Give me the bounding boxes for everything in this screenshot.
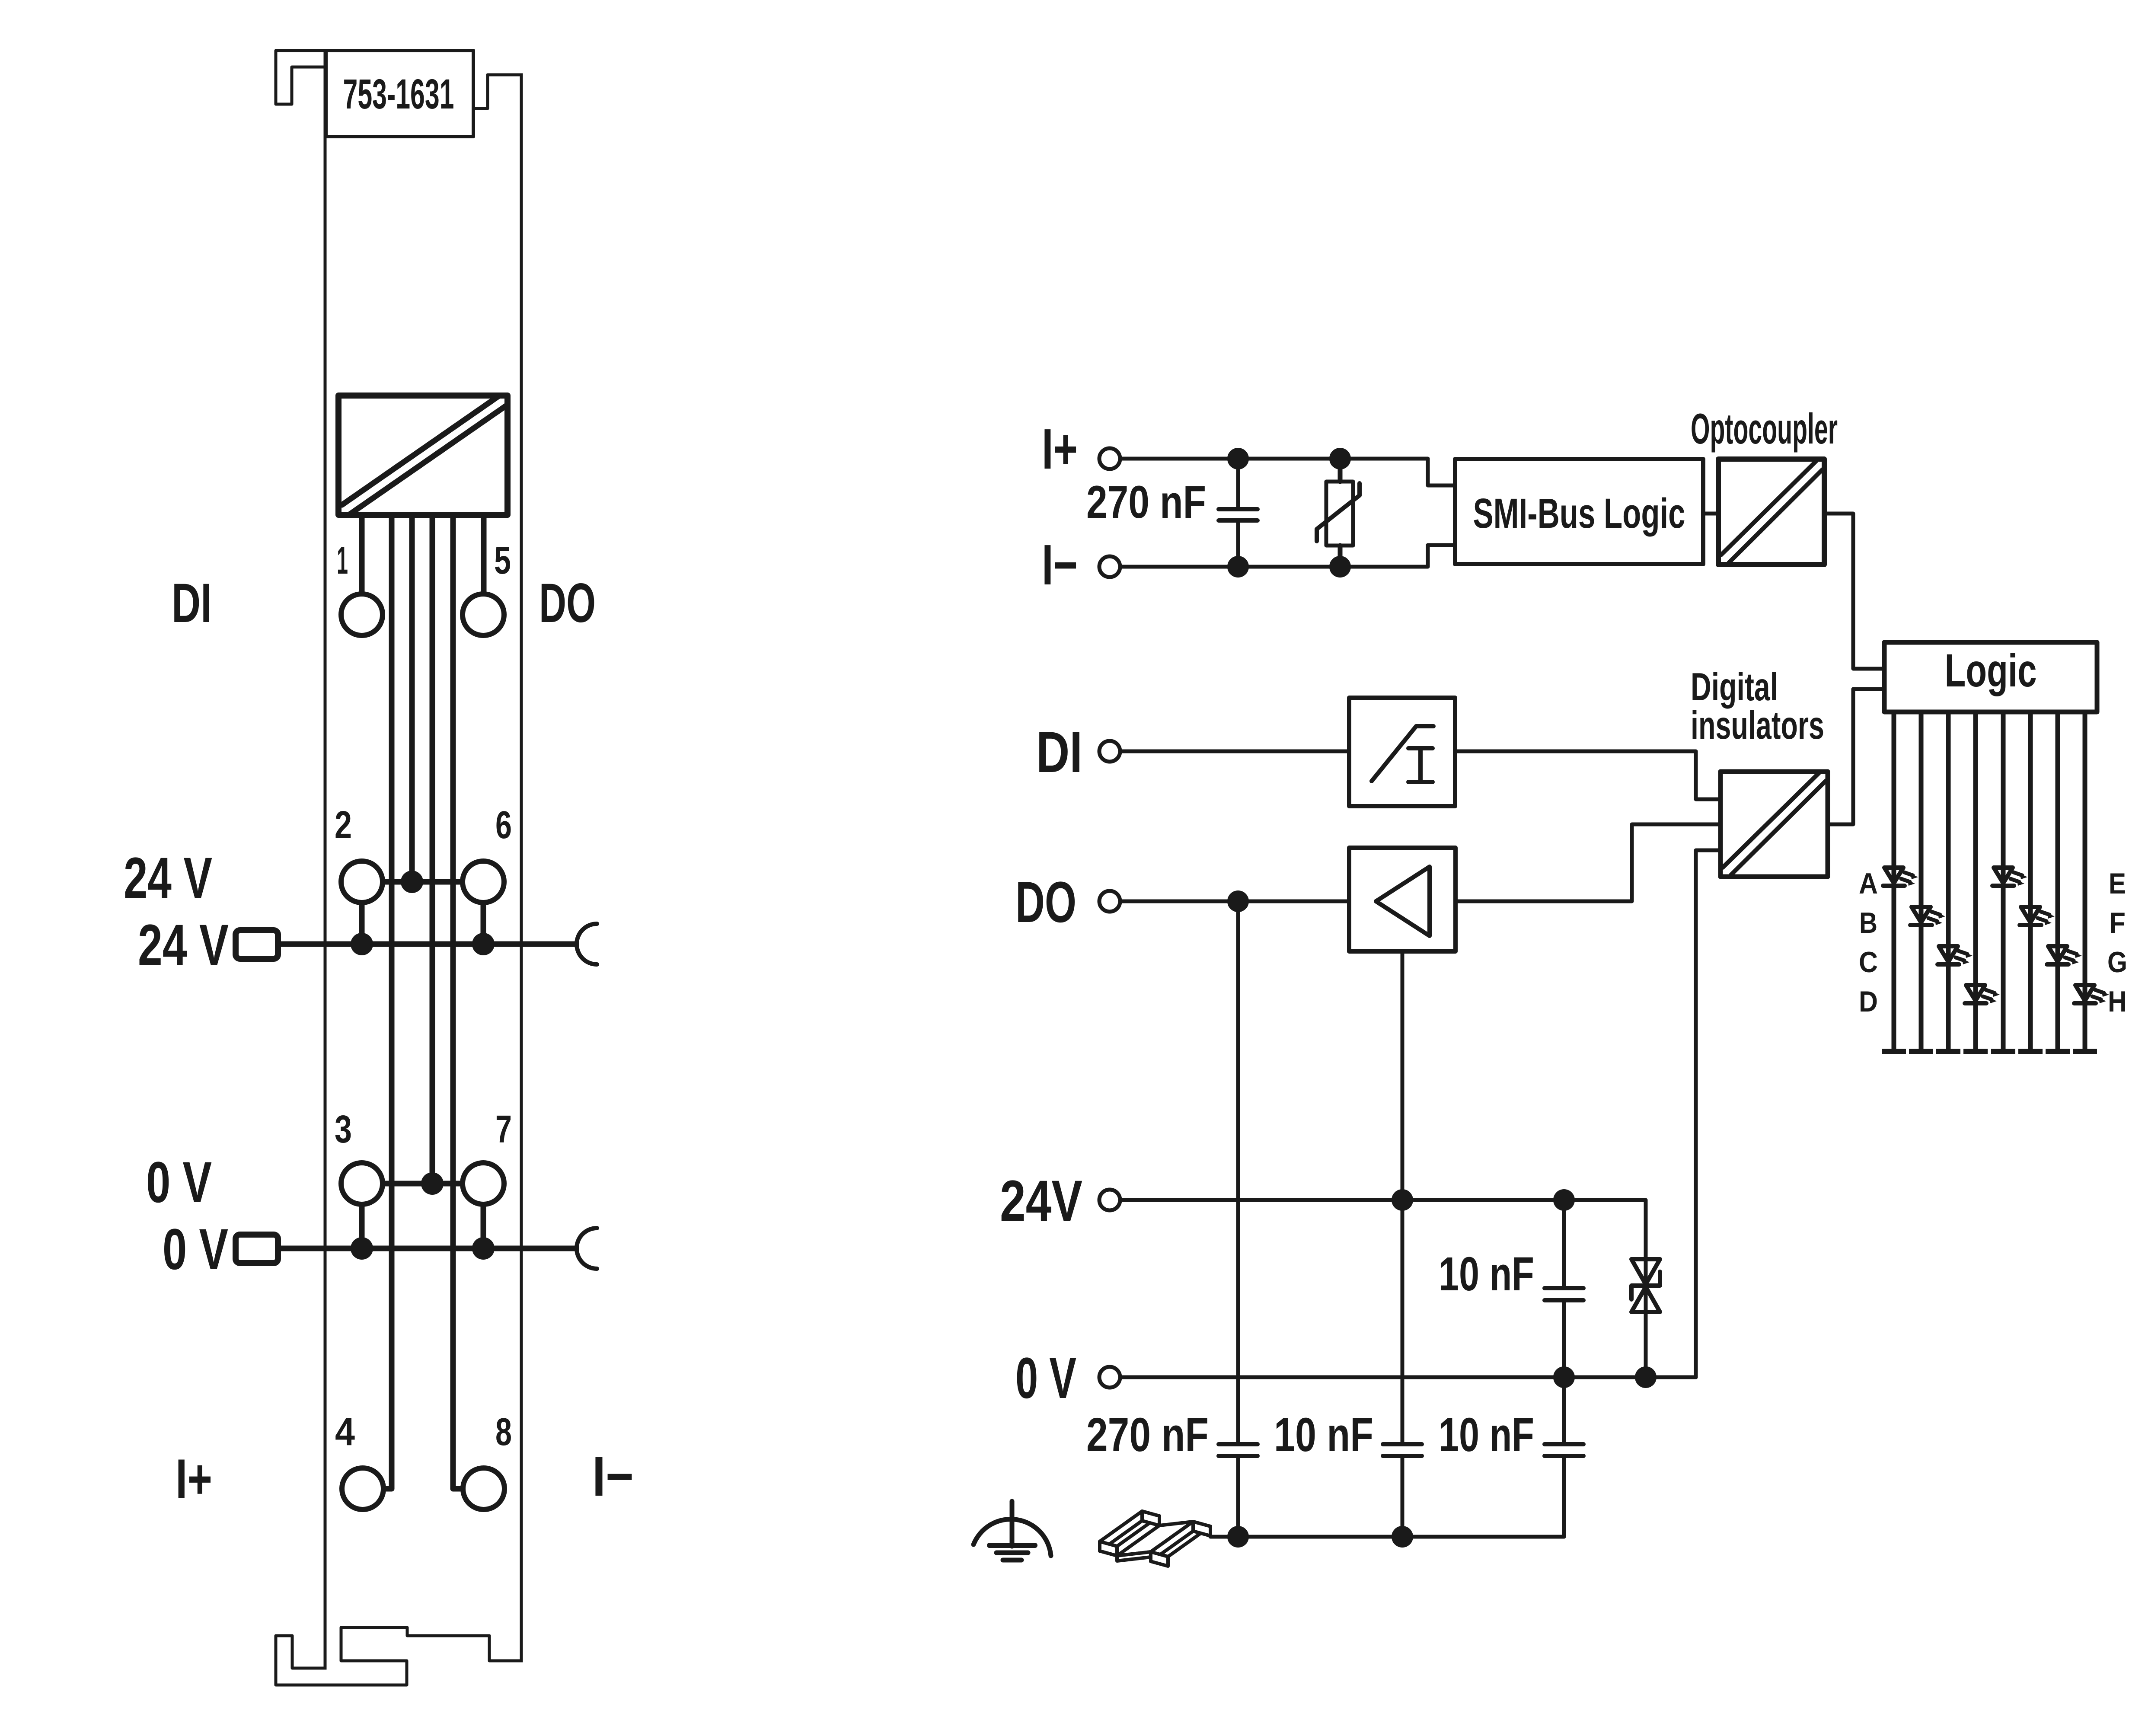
svg-text:A: A: [1859, 867, 1878, 900]
svg-text:DO: DO: [539, 572, 596, 634]
svg-text:D: D: [1859, 985, 1878, 1018]
svg-text:3: 3: [335, 1108, 352, 1151]
svg-text:270 nF: 270 nF: [1086, 1408, 1209, 1462]
svg-text:SMI-Bus Logic: SMI-Bus Logic: [1473, 490, 1685, 537]
svg-text:Optocoupler: Optocoupler: [1691, 405, 1838, 453]
svg-text:0 V: 0 V: [163, 1217, 228, 1282]
svg-text:B: B: [1859, 906, 1877, 939]
svg-text:Digital: Digital: [1691, 665, 1778, 709]
svg-text:24 V: 24 V: [138, 913, 229, 977]
svg-text:753-1631: 753-1631: [343, 70, 454, 118]
svg-text:G: G: [2107, 946, 2127, 979]
svg-text:24V: 24V: [1000, 1169, 1082, 1233]
svg-text:270 nF: 270 nF: [1086, 476, 1206, 528]
svg-text:C: C: [1859, 946, 1878, 979]
svg-text:DI: DI: [172, 572, 212, 634]
svg-text:insulators: insulators: [1691, 704, 1824, 747]
svg-text:I+: I+: [1042, 417, 1078, 481]
svg-text:24 V: 24 V: [124, 846, 212, 910]
svg-text:0 V: 0 V: [1015, 1346, 1076, 1410]
svg-text:E: E: [2109, 867, 2126, 900]
svg-text:F: F: [2109, 906, 2126, 939]
svg-text:1: 1: [337, 539, 348, 582]
svg-text:DI: DI: [1036, 720, 1082, 785]
svg-text:2: 2: [335, 804, 352, 847]
svg-text:10 nF: 10 nF: [1439, 1248, 1534, 1301]
svg-text:7: 7: [495, 1108, 512, 1151]
svg-text:5: 5: [494, 539, 511, 582]
svg-text:0 V: 0 V: [146, 1150, 212, 1215]
svg-text:10 nF: 10 nF: [1439, 1408, 1534, 1462]
svg-text:I−: I−: [1042, 533, 1078, 597]
svg-text:H: H: [2108, 985, 2127, 1018]
svg-text:10 nF: 10 nF: [1274, 1408, 1373, 1462]
svg-text:Logic: Logic: [1945, 644, 2037, 696]
svg-text:6: 6: [495, 804, 512, 847]
svg-text:I−: I−: [592, 1445, 634, 1508]
svg-text:I+: I+: [176, 1447, 212, 1510]
svg-text:4: 4: [335, 1410, 355, 1454]
svg-text:DO: DO: [1015, 870, 1076, 935]
svg-text:8: 8: [495, 1410, 512, 1454]
